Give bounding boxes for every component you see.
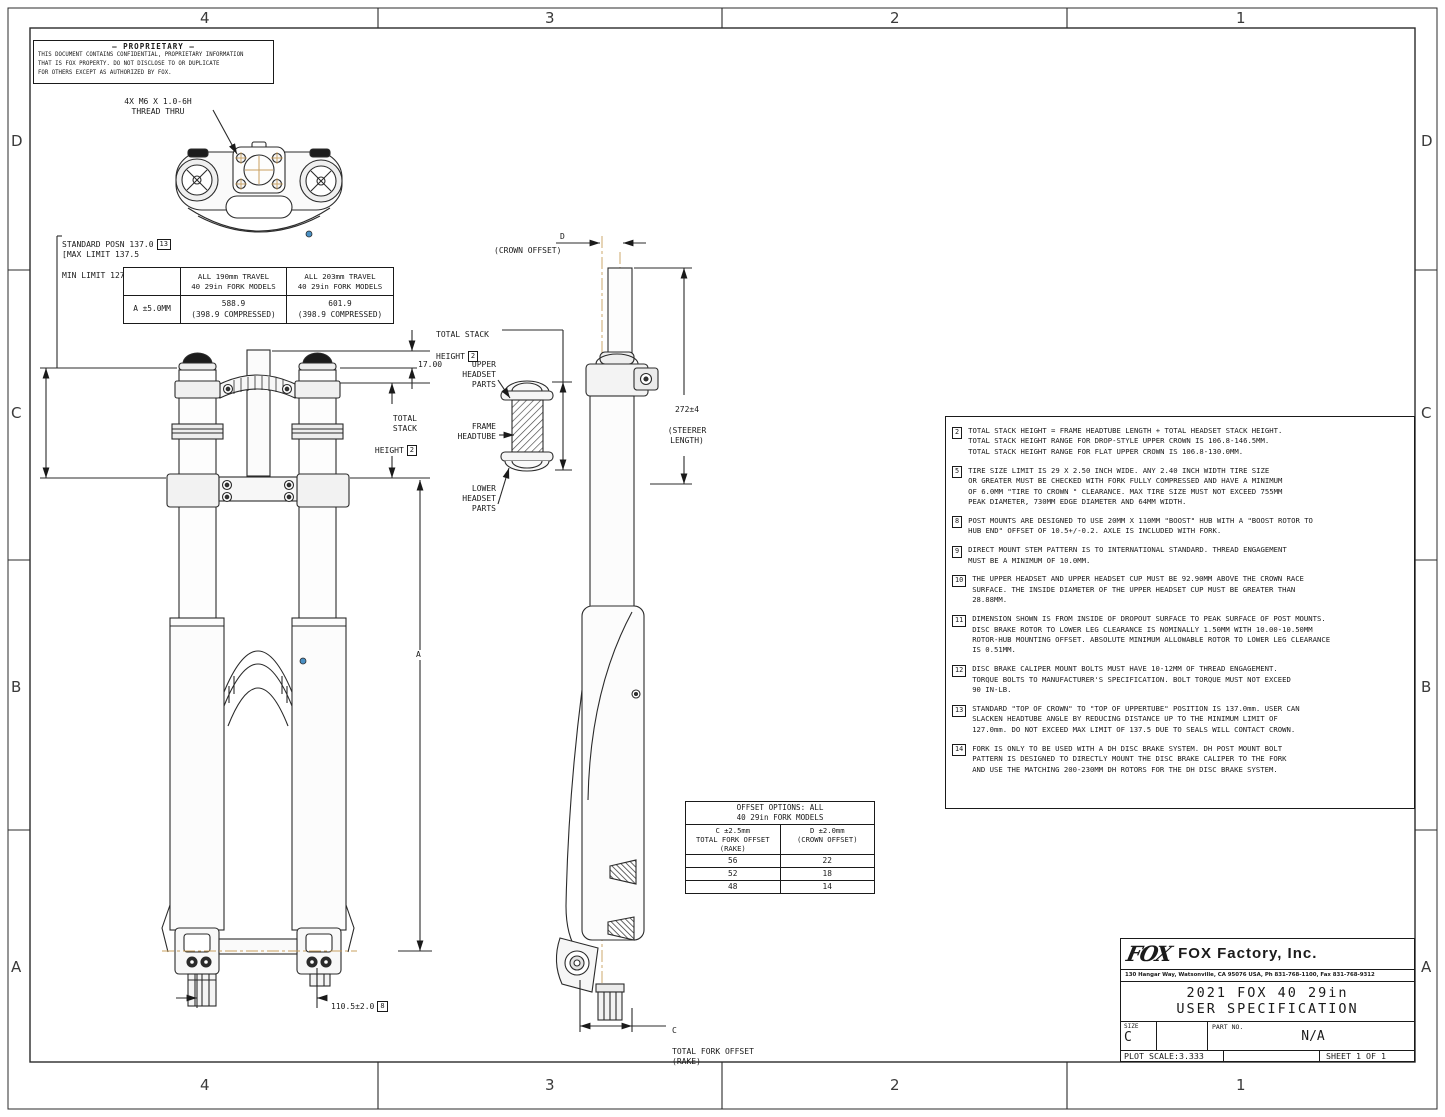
size-cell: SIZE C	[1121, 1022, 1157, 1050]
zone-col-bottom-2: 2	[890, 1076, 900, 1094]
zone-col-top-2: 2	[890, 9, 900, 27]
offset-col2-header: D ±2.0mm (CROWN OFFSET)	[781, 825, 875, 854]
note-ref-2b: 2	[407, 445, 417, 456]
zone-row-left-a: A	[11, 958, 21, 976]
callout-upper-headset: UPPER HEADSET PARTS	[438, 360, 496, 391]
offset-options-table: OFFSET OPTIONS: ALL 40 29in FORK MODELS …	[685, 801, 875, 894]
offset-row-56: 56 22	[686, 855, 874, 868]
fox-logo: FOX	[1124, 941, 1172, 966]
zone-col-bottom-1: 1	[1236, 1076, 1246, 1094]
note-text: FORK IS ONLY TO BE USED WITH A DH DISC B…	[972, 744, 1286, 775]
notes-box: 2 TOTAL STACK HEIGHT = FRAME HEADTUBE LE…	[945, 416, 1415, 809]
max-limit-text: [MAX LIMIT 137.5	[62, 250, 171, 260]
note-2: 2 TOTAL STACK HEIGHT = FRAME HEADTUBE LE…	[952, 426, 1408, 457]
callout-thread-thru: 4X M6 X 1.0-6H THREAD THRU	[92, 97, 224, 117]
note-8: 8 POST MOUNTS ARE DESIGNED TO USE 20MM X…	[952, 516, 1408, 537]
offset-crown-18: 18	[781, 868, 875, 880]
rake-label: TOTAL FORK OFFSET (RAKE)	[672, 1047, 754, 1067]
steerer-length-value: 272±4	[649, 405, 725, 415]
callout-total-stack-height-front: TOTAL STACK HEIGHT2	[364, 404, 418, 456]
title-block-spacer	[1157, 1022, 1208, 1050]
headset-stack-detail	[501, 381, 553, 471]
travel-table-corner	[124, 268, 181, 296]
zone-col-bottom-4: 4	[200, 1076, 210, 1094]
dim-crown-offset-letter: D	[560, 232, 565, 242]
offset-col1-header: C ±2.5mm TOTAL FORK OFFSET (RAKE)	[686, 825, 781, 854]
offset-row-52: 52 18	[686, 868, 874, 881]
callout-frame-headtube: FRAME HEADTUBE	[442, 422, 496, 442]
dim-hub-spacing: 110.5±2.08	[331, 991, 388, 1012]
front-view-fork	[162, 350, 354, 1006]
offset-row-48: 48 14	[686, 881, 874, 893]
dim-a-letter: A	[415, 650, 422, 660]
dim-steerer-length: 272±4 (STEERER LENGTH)	[648, 395, 726, 456]
note-10: 10 THE UPPER HEADSET AND UPPER HEADSET C…	[952, 574, 1408, 605]
note-9: 9 DIRECT MOUNT STEM PATTERN IS TO INTERN…	[952, 545, 1408, 566]
proprietary-notice: — PROPRIETARY — THIS DOCUMENT CONTAINS C…	[33, 40, 274, 84]
zone-row-right-b: B	[1421, 678, 1431, 696]
size-value: C	[1124, 1030, 1156, 1045]
note-text: DIMENSION SHOWN IS FROM INSIDE OF DROPOU…	[972, 614, 1330, 656]
steerer-length-label: (STEERER LENGTH)	[649, 426, 725, 446]
zone-col-top-3: 3	[545, 9, 555, 27]
zone-row-left-b: B	[11, 678, 21, 696]
note-text: DISC BRAKE CALIPER MOUNT BOLTS MUST HAVE…	[972, 664, 1291, 695]
note-ref-8: 8	[377, 1001, 387, 1012]
offset-rake-52: 52	[686, 868, 781, 880]
total-stack2-lines: TOTAL STACK	[365, 414, 417, 434]
title-block-logo-row: FOX FOX Factory, Inc.	[1121, 939, 1414, 969]
note-5: 5 TIRE SIZE LIMIT IS 29 X 2.50 INCH WIDE…	[952, 466, 1408, 508]
zone-col-bottom-3: 3	[545, 1076, 555, 1094]
note-number: 10	[952, 575, 966, 587]
title-block-spacer2	[1224, 1051, 1320, 1061]
note-text: DIRECT MOUNT STEM PATTERN IS TO INTERNAT…	[968, 545, 1287, 566]
dim-rake: C TOTAL FORK OFFSET (RAKE)	[672, 1016, 754, 1077]
proprietary-title: — PROPRIETARY —	[38, 42, 269, 51]
note-ref-13: 13	[157, 239, 171, 250]
zone-col-top-1: 1	[1236, 9, 1246, 27]
part-no-cell: PART NO. N/A	[1208, 1022, 1414, 1050]
note-number: 9	[952, 546, 962, 558]
hub-spacing-value: 110.5±2.0	[331, 1002, 374, 1011]
note-text: POST MOUNTS ARE DESIGNED TO USE 20MM X 1…	[968, 516, 1313, 537]
size-label: SIZE	[1124, 1023, 1156, 1030]
note-text: STANDARD "TOP OF CROWN" TO "TOP OF UPPER…	[972, 704, 1299, 735]
plot-scale: PLOT SCALE:3.333	[1121, 1051, 1224, 1061]
note-number: 11	[952, 615, 966, 627]
travel-table-value-190: 588.9 (398.9 COMPRESSED)	[181, 296, 287, 323]
travel-table-value-203: 601.9 (398.9 COMPRESSED)	[287, 296, 393, 323]
travel-table-row-label: A ±5.0MM	[124, 296, 181, 323]
note-text: TOTAL STACK HEIGHT = FRAME HEADTUBE LENG…	[968, 426, 1282, 457]
standard-posn-text: STANDARD POSN 137.0	[62, 240, 154, 249]
callout-total-stack-height-detail: TOTAL STACK HEIGHT2	[436, 320, 506, 362]
drawing-title-line2: USER SPECIFICATION	[1176, 1001, 1358, 1018]
company-name: FOX Factory, Inc.	[1178, 945, 1317, 962]
offset-table-title: OFFSET OPTIONS: ALL 40 29in FORK MODELS	[686, 802, 874, 825]
note-11: 11 DIMENSION SHOWN IS FROM INSIDE OF DRO…	[952, 614, 1408, 656]
part-no-value: N/A	[1212, 1029, 1414, 1044]
drawing-title-line1: 2021 FOX 40 29in	[1186, 985, 1348, 1002]
note-number: 14	[952, 744, 966, 756]
zone-row-left-c: C	[11, 404, 21, 422]
zone-col-top-4: 4	[200, 9, 210, 27]
offset-crown-14: 14	[781, 881, 875, 893]
note-13: 13 STANDARD "TOP OF CROWN" TO "TOP OF UP…	[952, 704, 1408, 735]
note-number: 8	[952, 516, 962, 528]
note-text: TIRE SIZE LIMIT IS 29 X 2.50 INCH WIDE. …	[968, 466, 1282, 508]
drawing-title: 2021 FOX 40 29in USER SPECIFICATION	[1121, 981, 1414, 1022]
sheet-number: SHEET 1 OF 1	[1320, 1051, 1414, 1061]
title-block: FOX FOX Factory, Inc. 130 Hangar Way, Wa…	[1120, 938, 1415, 1062]
dim-crown-offset-label: (CROWN OFFSET)	[494, 246, 561, 256]
side-view-fork	[162, 236, 658, 1020]
top-view-crown	[176, 110, 342, 237]
note-14: 14 FORK IS ONLY TO BE USED WITH A DH DIS…	[952, 744, 1408, 775]
note-12: 12 DISC BRAKE CALIPER MOUNT BOLTS MUST H…	[952, 664, 1408, 695]
proprietary-body: THIS DOCUMENT CONTAINS CONFIDENTIAL, PRO…	[38, 51, 269, 77]
zone-row-right-c: C	[1421, 404, 1431, 422]
offset-rake-56: 56	[686, 855, 781, 867]
zone-row-left-d: D	[11, 132, 23, 150]
zone-row-right-a: A	[1421, 958, 1431, 976]
travel-table-header-190: ALL 190mm TRAVEL 40 29in FORK MODELS	[181, 268, 287, 296]
offset-crown-22: 22	[781, 855, 875, 867]
total-stack2-height: HEIGHT	[375, 446, 404, 455]
note-number: 12	[952, 665, 966, 677]
note-number: 5	[952, 466, 962, 478]
note-number: 13	[952, 705, 966, 717]
offset-rake-48: 48	[686, 881, 781, 893]
zone-row-right-d: D	[1421, 132, 1433, 150]
travel-table-header-203: ALL 203mm TRAVEL 40 29in FORK MODELS	[287, 268, 393, 296]
rake-letter: C	[672, 1026, 754, 1036]
note-number: 2	[952, 427, 962, 439]
travel-table: ALL 190mm TRAVEL 40 29in FORK MODELS ALL…	[123, 267, 394, 324]
callout-lower-headset: LOWER HEADSET PARTS	[438, 484, 496, 515]
dim-17: 17.00	[417, 360, 443, 370]
note-text: THE UPPER HEADSET AND UPPER HEADSET CUP …	[972, 574, 1304, 605]
total-stack-line1: TOTAL STACK	[436, 330, 506, 340]
drawing-sheet: 4 3 2 1 4 3 2 1 D C B A D C B A — PROPRI…	[0, 0, 1445, 1117]
company-address: 130 Hangar Way, Watsonville, CA 95076 US…	[1121, 969, 1414, 981]
